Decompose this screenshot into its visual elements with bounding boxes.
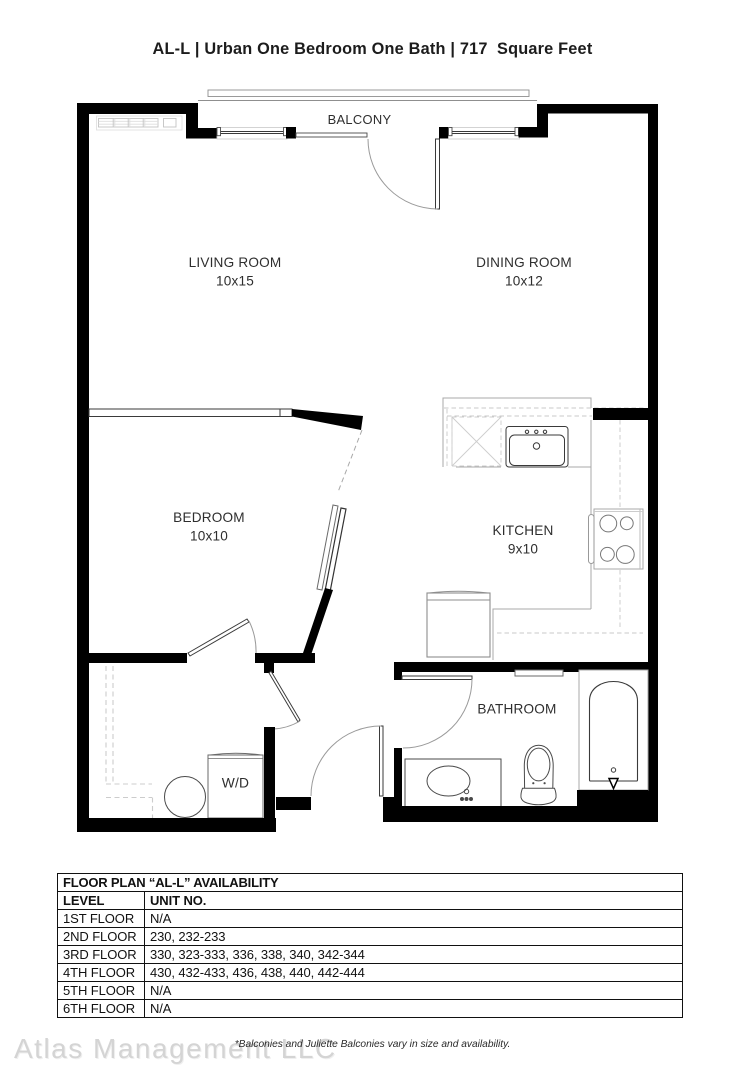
svg-text:10x10: 10x10 <box>190 529 228 544</box>
svg-text:BATHROOM: BATHROOM <box>477 702 556 717</box>
svg-text:10x12: 10x12 <box>505 274 543 289</box>
svg-text:DINING ROOM: DINING ROOM <box>476 255 572 270</box>
svg-text:LIVING ROOM: LIVING ROOM <box>189 255 282 270</box>
svg-text:KITCHEN: KITCHEN <box>492 523 553 538</box>
svg-text:9x10: 9x10 <box>508 542 539 557</box>
svg-text:BEDROOM: BEDROOM <box>173 510 245 525</box>
svg-text:10x15: 10x15 <box>216 274 254 289</box>
svg-text:W/D: W/D <box>222 776 249 791</box>
svg-text:BALCONY: BALCONY <box>328 112 392 127</box>
